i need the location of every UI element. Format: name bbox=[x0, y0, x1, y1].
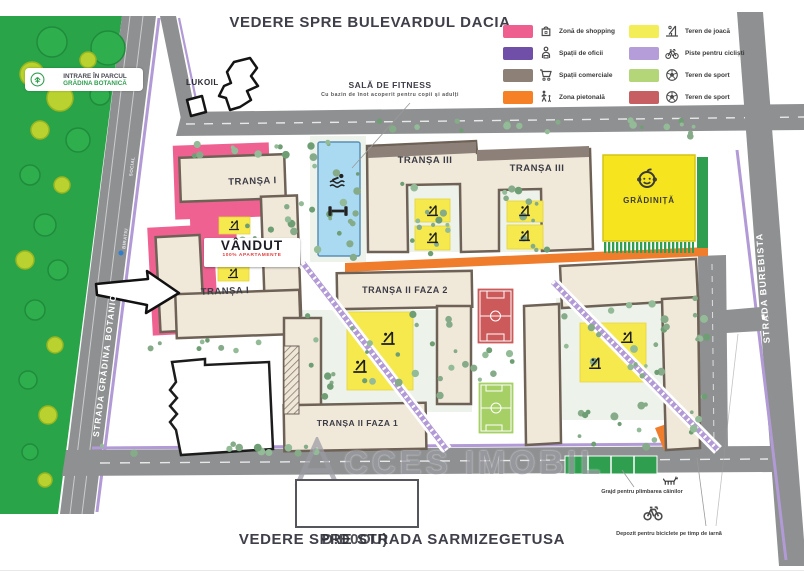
legend-label: Piste pentru cicliști bbox=[685, 50, 745, 57]
legend-label: Spații comerciale bbox=[559, 72, 612, 79]
playground-slide-icon bbox=[228, 219, 240, 231]
parcel-outline bbox=[170, 359, 273, 455]
road-burebista bbox=[737, 12, 804, 566]
playground-slide-icon bbox=[352, 358, 368, 374]
bottom-title: VEDERE SPRE STRADA SARMIZEGETUSA bbox=[0, 531, 804, 548]
kindergarten-hedge bbox=[604, 242, 694, 253]
playground-slide-icon bbox=[588, 356, 602, 370]
park-label-line2: GRĂDINA BOTANICĂ bbox=[49, 80, 141, 87]
baby-icon bbox=[635, 166, 659, 190]
fitness-subtitle: Cu bazin de înot acoperit pentru copii ș… bbox=[285, 92, 495, 98]
dog-icon bbox=[662, 472, 679, 487]
park-label-line1: INTRARE ÎN PARCUL bbox=[49, 73, 141, 80]
playground-slide-icon bbox=[227, 267, 239, 279]
swimmer-icon bbox=[328, 172, 348, 188]
sold-badge: VÂNDUT 100% APARTAMENTE bbox=[204, 238, 300, 267]
kindergarten-label: GRĂDINIȚĂ bbox=[606, 196, 692, 205]
soccer-ball-icon bbox=[665, 68, 679, 82]
sport-field-red bbox=[477, 288, 514, 344]
playground-slide-icon bbox=[518, 204, 531, 217]
playground-icon bbox=[665, 24, 679, 38]
site-plan-canvas: VEDERE SPRE BULEVARDUL DACIA Zonă de sho… bbox=[0, 0, 804, 571]
playground-slide-icon bbox=[426, 204, 439, 217]
legend-swatch bbox=[503, 91, 533, 104]
legend-item: Piste pentru cicliști bbox=[629, 46, 745, 60]
office-icon bbox=[539, 46, 553, 60]
lukoil-outline bbox=[187, 58, 258, 116]
sport-field-green bbox=[478, 382, 514, 434]
dumbbell-icon bbox=[327, 204, 349, 218]
legend-item: Zonă de shopping bbox=[503, 24, 615, 38]
legend-swatch bbox=[629, 25, 659, 38]
legend-label: Teren de sport bbox=[685, 72, 730, 79]
bicycle-icon bbox=[665, 46, 679, 60]
legend-label: Teren de joacă bbox=[685, 28, 730, 35]
pedestrian-icon bbox=[539, 90, 553, 104]
legend-label: Zona pietonală bbox=[559, 94, 605, 101]
watermark-text: CCES IMOBIL bbox=[344, 444, 604, 482]
road-top bbox=[176, 104, 804, 136]
legend-label: Teren de sport bbox=[685, 94, 730, 101]
dog-area-label: Grajd pentru plimbarea câinilor bbox=[560, 489, 724, 495]
shopping-cart-icon bbox=[539, 68, 553, 82]
legend-item: Teren de sport bbox=[629, 90, 745, 104]
legend-swatch bbox=[503, 69, 533, 82]
legend-swatch bbox=[503, 25, 533, 38]
playground-slide-icon bbox=[620, 330, 634, 344]
tree-icon bbox=[30, 72, 45, 87]
building-label-transa2-faza1: TRANȘA II FAZA 1 bbox=[285, 418, 430, 428]
soccer-ball-icon bbox=[665, 90, 679, 104]
legend-item: Spații comerciale bbox=[503, 68, 615, 82]
sold-badge-title: VÂNDUT bbox=[204, 239, 300, 253]
bottom-title-overlap: Đ!Đ0OU) bbox=[322, 531, 388, 548]
blank-box bbox=[295, 479, 419, 528]
park-entrance-label: INTRARE ÎN PARCUL GRĂDINA BOTANICĂ bbox=[25, 68, 143, 91]
legend-item: Spații de oficii bbox=[503, 46, 615, 60]
legend-item: Teren de joacă bbox=[629, 24, 745, 38]
legend: Zonă de shoppingSpații de oficiiSpații c… bbox=[503, 24, 745, 104]
lukoil-label: LUKOIL bbox=[186, 78, 219, 87]
legend-swatch bbox=[629, 69, 659, 82]
legend-swatch bbox=[503, 47, 533, 60]
sold-badge-subtitle: 100% APARTAMENTE bbox=[204, 253, 300, 258]
fitness-title: SALĂ DE FITNESS bbox=[310, 80, 470, 90]
bicycle-icon bbox=[640, 502, 666, 522]
playground-slide-icon bbox=[380, 330, 396, 346]
legend-swatch bbox=[629, 47, 659, 60]
fitness-pool-building bbox=[318, 142, 360, 256]
legend-label: Zonă de shopping bbox=[559, 28, 615, 35]
playground-slide-icon bbox=[518, 229, 531, 242]
building-label-transa3-left: TRANȘA III bbox=[370, 155, 480, 166]
legend-swatch bbox=[629, 91, 659, 104]
legend-item: Teren de sport bbox=[629, 68, 745, 82]
building-label-transa2-faza2: TRANȘA II FAZA 2 bbox=[330, 285, 480, 295]
building-label-transa3-right: TRANȘA III bbox=[482, 163, 592, 174]
legend-label: Spații de oficii bbox=[559, 50, 603, 57]
shopping-bag-icon bbox=[539, 24, 553, 38]
legend-item: Zona pietonală bbox=[503, 90, 615, 104]
playground-slide-icon bbox=[426, 231, 439, 244]
